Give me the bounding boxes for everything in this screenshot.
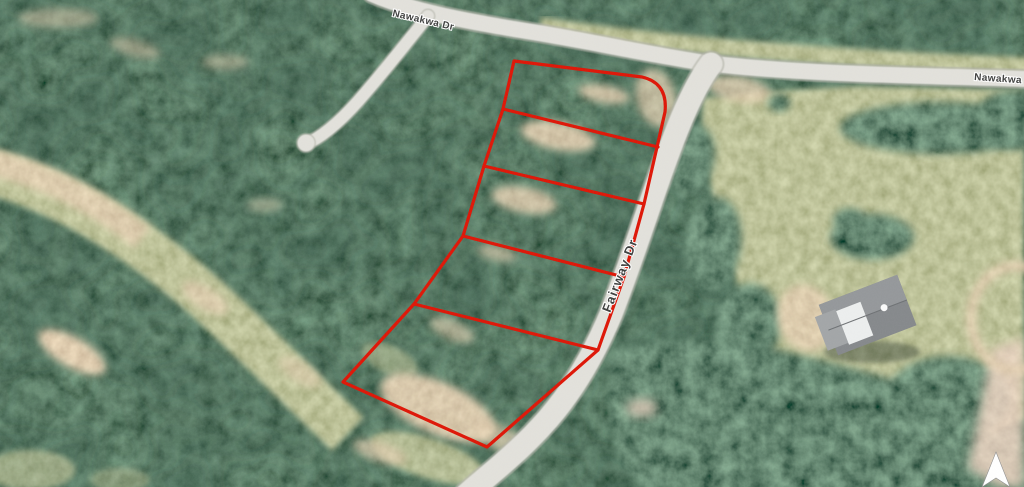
map-canvas: Nawakwa Dr Nawakwa Dr Fairway Dr bbox=[0, 0, 1024, 487]
grain-overlay bbox=[0, 0, 1024, 487]
satellite-map[interactable]: Nawakwa Dr Nawakwa Dr Fairway Dr bbox=[0, 0, 1024, 487]
